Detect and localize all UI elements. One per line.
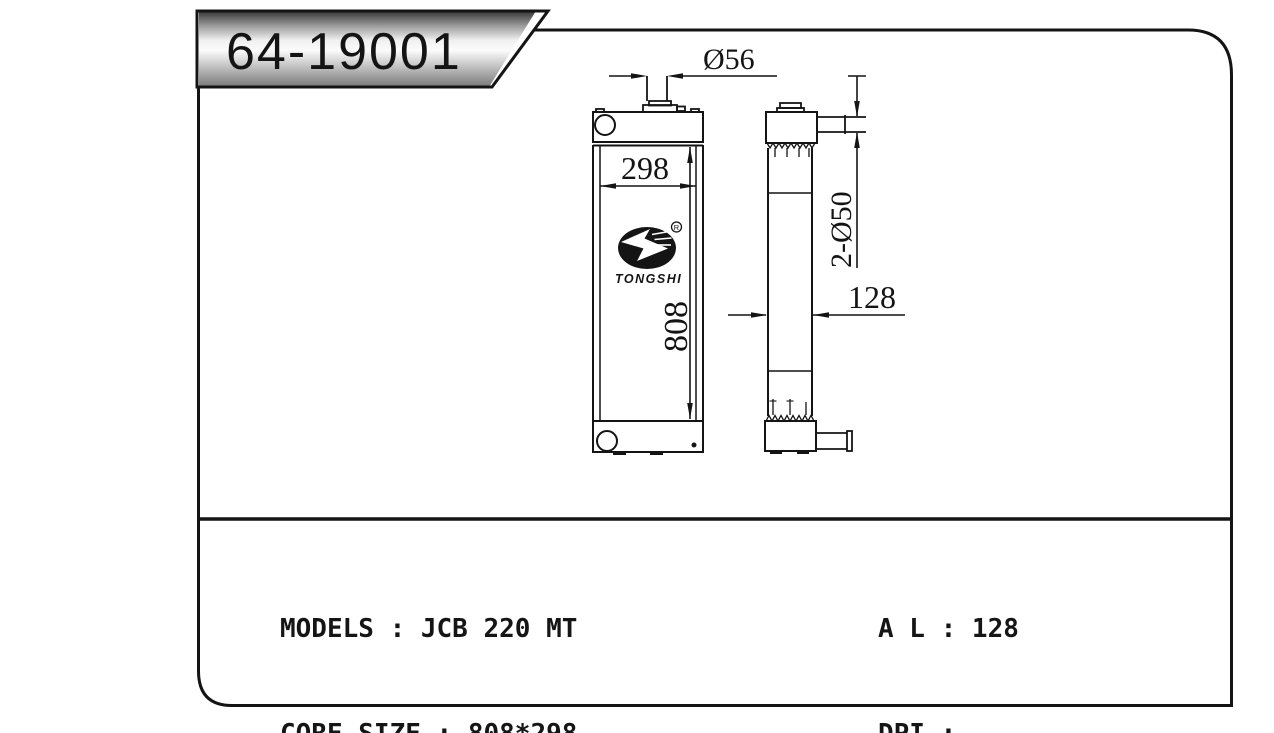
dim-core-width-label: 298 [621,150,669,186]
spec-table-left: MODELS : JCB 220 MT CORE SIZE : 808*298 … [280,542,640,733]
part-number: 64-19001 [226,23,462,81]
spec-dpi: DPI : [878,717,1019,733]
spec-al: A L : 128 [878,612,1019,647]
dim-core-height-label: 808 [658,301,695,352]
spec-table-right: A L : 128 DPI : OEM : NISSENS: [878,542,1019,733]
spec-models: MODELS : JCB 220 MT [280,612,640,647]
drain-hole [597,431,617,451]
filler-hole [595,115,615,135]
spec-sheet: Ø56 298 808 R TONGSHI [0,0,1274,733]
spec-core-size: CORE SIZE : 808*298 [280,717,640,733]
dim-filler-neck: Ø56 [609,43,777,79]
brand-name: TONGSHI [615,272,682,286]
dim-core-width: 298 [600,150,696,189]
dim-pipes-label: 2-Ø50 [825,191,858,268]
part-number-badge: 64-19001 [197,11,548,87]
dim-depth-label: 128 [848,279,896,315]
tongshi-logo: R TONGSHI [615,222,682,286]
dim-pipes: 2-Ø50 [825,76,866,268]
dim-filler-neck-label: Ø56 [703,43,755,76]
dim-depth: 128 [728,279,905,318]
registered-mark: R [674,223,680,232]
